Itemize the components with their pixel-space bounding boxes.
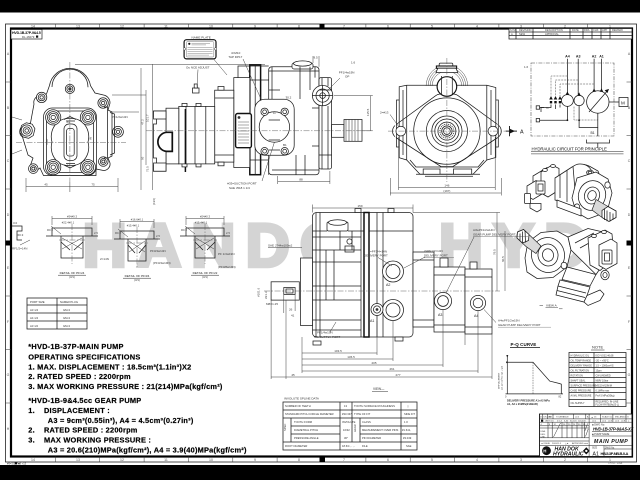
svg-text:2.5: 2.5 (156, 234, 160, 238)
svg-text:A1: A1 (370, 319, 374, 323)
svg-text:PRESSURE ANGLE: PRESSURE ANGLE (294, 436, 319, 440)
svg-text:GM-3: GM-3 (63, 308, 70, 312)
svg-text:45: 45 (291, 373, 295, 377)
svg-text:APP: APP (602, 28, 607, 32)
svg-text:#1.641₊: #1.641₊ (402, 428, 412, 432)
svg-text:16/32: 16/32 (343, 428, 350, 432)
svg-text:A2: A2 (592, 55, 597, 59)
svg-text:14: 14 (31, 458, 35, 462)
svg-text:CHK.: CHK. (541, 436, 546, 438)
svg-text:ROOT DIAMETER: ROOT DIAMETER (285, 444, 307, 448)
svg-text:OP: OP (345, 75, 349, 79)
svg-text:#16.6#0.1: #16.6#0.1 (131, 218, 144, 222)
svg-text:M8X1.25: M8X1.25 (266, 302, 278, 306)
svg-text:A1: A1 (593, 452, 599, 458)
svg-text:A1, A2 ≤ 21MPa(214BAR): A1, A2 ≤ 21MPa(214BAR) (507, 402, 538, 406)
svg-text:A3wPF1/2w14N: A3wPF1/2w14N (473, 228, 495, 232)
svg-text:A4: A4 (565, 55, 570, 59)
svg-text:2: 2 (564, 25, 566, 29)
svg-text:5: 5 (431, 25, 433, 29)
svg-text:R0.3: R0.3 (115, 231, 121, 235)
svg-text:FILE: FILE (362, 444, 368, 448)
svg-text:OIL FILTRATION: OIL FILTRATION (571, 369, 590, 372)
svg-text:OPERATING SPECIFICATIONS: OPERATING SPECIFICATIONS (28, 352, 140, 361)
svg-text:2: 2 (564, 458, 566, 462)
svg-text:HVD-1B-37P-9&4.5-XX: HVD-1B-37P-9&4.5-XX (593, 427, 634, 432)
svg-text:A: A (511, 32, 513, 36)
svg-text:R0.3: R0.3 (181, 228, 187, 232)
svg-text:1.6: 1.6 (351, 61, 356, 65)
svg-text:8: 8 (298, 25, 300, 29)
svg-text:3.0: 3.0 (13, 221, 18, 225)
svg-text:11: 11 (164, 458, 168, 462)
svg-text:VIEW A: VIEW A (546, 304, 558, 308)
svg-text:ISO VG32,46,68: ISO VG32,46,68 (596, 354, 615, 357)
svg-text:*HVD-1B-9&4.5cc GEAR PUMP: *HVD-1B-9&4.5cc GEAR PUMP (28, 396, 141, 405)
svg-text:A1: A1 (599, 55, 604, 59)
svg-text:#33.337: #33.337 (342, 412, 352, 416)
svg-text:TOOTH SURFACE ROUGHNESS: TOOTH SURFACE ROUGHNESS (354, 404, 395, 408)
svg-text:DATE: DATE (572, 28, 579, 32)
svg-text:APPROVED: APPROVED (572, 442, 584, 445)
svg-text:41: 41 (291, 314, 295, 318)
svg-text:45: 45 (44, 183, 48, 187)
svg-text:CASE PRESSURE: CASE PRESSURE (571, 389, 592, 392)
svg-text:(PF3/4w19N): (PF3/4w19N) (153, 261, 171, 265)
svg-text:18.63¹₊₋₊₋: 18.63¹₊₋₊₋ (342, 444, 356, 448)
svg-text:HYDRAULIC CIRCUIT FOR PRINCIPL: HYDRAULIC CIRCUIT FOR PRINCIPLE (532, 147, 607, 152)
svg-text:2.5: 2.5 (226, 231, 230, 235)
svg-text:136.5: 136.5 (347, 355, 355, 359)
svg-text:PIN DIAMETER: PIN DIAMETER (362, 436, 381, 440)
svg-text:47.2: 47.2 (141, 119, 145, 125)
svg-text:1: 1 (609, 25, 611, 29)
svg-text:OIL SUPPLY: OIL SUPPLY (571, 402, 585, 405)
svg-text:(3/1): (3/1) (202, 275, 208, 279)
svg-text:-20 ~ +95°C: -20 ~ +95°C (596, 359, 609, 362)
svg-text:REVISION: REVISION (519, 28, 532, 32)
svg-text:205: 205 (371, 361, 376, 365)
svg-text:IN: IN (89, 137, 93, 140)
svg-text:#15.4#0.1: #15.4#0.1 (195, 221, 208, 225)
svg-text:6: 6 (387, 458, 389, 462)
svg-text:1.5 ~ 1000cm²/S: 1.5 ~ 1000cm²/S (596, 364, 614, 367)
svg-text:GEAR PUMP DELIVERY PORT: GEAR PUMP DELIVERY PORT (473, 232, 516, 236)
svg-text:©HYD - 1998: ©HYD - 1998 (608, 462, 623, 465)
svg-text:(3/1): (3/1) (69, 275, 75, 279)
svg-text:F: F (7, 320, 9, 324)
svg-text:DESCRIPTION: DESCRIPTION (545, 28, 563, 32)
svg-text:1 #: 1 # (404, 420, 408, 424)
svg-text:0.1MPa max: 0.1MPa max (596, 389, 610, 392)
svg-text:SAE J518 1 1/4: SAE J518 1 1/4 (229, 186, 250, 190)
svg-text:DELIVERY PORT: DELIVERY PORT (424, 254, 448, 258)
svg-text:2=#13: 2=#13 (380, 111, 389, 115)
svg-text:7: 7 (343, 458, 345, 462)
svg-text:79.5: 79.5 (493, 249, 497, 255)
svg-text:#34#9.3: #34#9.3 (67, 215, 78, 219)
svg-text:#22.4#0.1: #22.4#0.1 (62, 221, 75, 225)
svg-text:9.5: 9.5 (314, 56, 319, 60)
svg-text:A4 1/4: A4 1/4 (30, 316, 39, 320)
svg-text:(3/1): (3/1) (134, 278, 140, 282)
svg-text:DRA: DRA (584, 28, 590, 32)
svg-text:TOOTH FORM: TOOTH FORM (294, 420, 313, 424)
svg-text:FLOW RATE(8w20 L): FLOW RATE(8w20 L) (596, 404, 620, 407)
svg-text:1. MAX. DISPLACEMENT : 18.5cm³: 1. MAX. DISPLACEMENT : 18.5cm³(1.1in³)X2 (28, 363, 191, 372)
svg-text:SCALE 1/2: SCALE 1/2 (602, 416, 613, 419)
svg-text:INVOLUTE: INVOLUTE (342, 420, 356, 424)
svg-text:13: 13 (344, 404, 347, 408)
svg-text:261: 261 (389, 367, 394, 371)
svg-text:HYDRAULIC OIL: HYDRAULIC OIL (571, 354, 590, 357)
svg-text:OUT: OUT (45, 138, 49, 145)
svg-text:26: 26 (289, 308, 293, 312)
svg-text:TAP DP17: TAP DP17 (228, 55, 242, 59)
svg-text:4=M10: 4=M10 (231, 51, 241, 55)
svg-text:GEAR: GEAR (353, 424, 357, 432)
svg-text:14: 14 (31, 25, 35, 29)
svg-text:H: H (543, 449, 546, 454)
svg-text:A4: A4 (474, 314, 478, 318)
svg-text:AXIAL PRESSURE: AXIAL PRESSURE (571, 394, 592, 397)
svg-text:TYPE OF FIT: TYPE OF FIT (354, 412, 371, 416)
svg-text:DL-16079: DL-16079 (22, 35, 35, 39)
svg-text:SIZE: SIZE (592, 447, 598, 449)
svg-text:2. RATED SPEED : 2200rpm: 2. RATED SPEED : 2200rpm (28, 372, 131, 381)
svg-text:115.5: 115.5 (366, 108, 370, 116)
svg-text:SHAFT SEAL: SHAFT SEAL (571, 379, 587, 382)
svg-text:UNIT mm: UNIT mm (545, 421, 554, 423)
svg-text:F≤A 5 MPa(50kg): F≤A 5 MPa(50kg) (596, 395, 615, 398)
svg-text:1. DISPLACEMENT :: 1. DISPLACEMENT : (28, 406, 110, 415)
svg-text:ROTATION: ROTATION (571, 374, 583, 377)
svg-text:GM-3: GM-3 (63, 324, 70, 328)
svg-text:7: 7 (343, 25, 345, 29)
svg-text:9: 9 (254, 458, 256, 462)
svg-text:#15.4#0.1: #15.4#0.1 (127, 224, 140, 228)
svg-text:MEASUREMENT OVER PINS: MEASUREMENT OVER PINS (362, 428, 398, 432)
svg-text:146: 146 (444, 184, 449, 188)
svg-text:▲ ISSUE: ▲ ISSUE (541, 442, 550, 445)
svg-text:30-120: 30-120 (570, 421, 577, 423)
svg-text:5: 5 (431, 458, 433, 462)
svg-text:DELIVERY PORT: DELIVERY PORT (364, 254, 388, 258)
svg-text:OIL TEMP RANGE: OIL TEMP RANGE (571, 359, 592, 362)
svg-text:DWG No.: DWG No. (605, 447, 615, 449)
svg-text:▲▲: ▲▲ (584, 442, 588, 445)
svg-text:NUMBER OF TEETH: NUMBER OF TEETH (285, 404, 311, 408)
svg-text:4: 4 (476, 25, 478, 29)
svg-text:RF1/2=14N: RF1/2=14N (12, 247, 27, 251)
svg-text:101.7: 101.7 (146, 114, 150, 122)
svg-text:HYDRAULIC: HYDRAULIC (553, 452, 584, 458)
svg-text:4: 4 (476, 458, 478, 462)
svg-text:120-400: 120-400 (578, 421, 586, 423)
svg-text:MS32-M10N/M: MS32-M10N/M (596, 384, 612, 387)
svg-text:73.5: 73.5 (146, 166, 150, 172)
svg-text:SYM: SYM (510, 28, 516, 32)
svg-text:277: 277 (395, 373, 400, 377)
svg-text:G: G (7, 373, 10, 377)
svg-text:10μm: 10μm (596, 369, 602, 372)
svg-text:SPEC: SPEC (283, 424, 287, 431)
svg-text:SAE J744w105w2: SAE J744w105w2 (268, 244, 293, 248)
svg-text:Ou NCE ADJUST: Ou NCE ADJUST (186, 66, 210, 70)
svg-text:A3 = 9cm³(0.55in³), A4 = 4.5cm: A3 = 9cm³(0.55in³), A4 = 4.5cm³(0.27in³) (48, 416, 194, 425)
svg-text:(PF3/8w19N): (PF3/8w19N) (218, 265, 236, 269)
svg-text:P-Q CURVE: P-Q CURVE (511, 342, 537, 347)
svg-text:30.2: 30.2 (286, 96, 292, 100)
svg-text:DISPLACEMENT: DISPLACEMENT (498, 372, 501, 389)
svg-text:M: M (621, 101, 625, 106)
svg-text:2=PF1/2=14N: 2=PF1/2=14N (424, 249, 443, 253)
svg-text:PF3/4w14N: PF3/4w14N (150, 249, 166, 253)
svg-text:MAIN PUMP: MAIN PUMP (594, 439, 628, 445)
svg-text:3: 3 (520, 458, 522, 462)
svg-text:HB-5-3P-NB-B-0-A: HB-5-3P-NB-B-0-A (601, 451, 629, 456)
svg-text:3: 3 (520, 25, 522, 29)
svg-text:75: 75 (91, 183, 95, 187)
svg-text:0.5-3: 0.5-3 (557, 421, 563, 423)
svg-text:30°: 30° (344, 436, 348, 440)
svg-text:NEW: NEW (519, 32, 526, 36)
svg-text:A3 = 20.6(210)MPa(kgf/cm²), A4: A3 = 20.6(210)MPa(kgf/cm²), A4 = 3.9(40)… (48, 446, 247, 455)
svg-text:2=14N: 2=14N (100, 257, 109, 261)
svg-text:PF1/2w14N: PF1/2w14N (112, 115, 128, 119)
svg-text:GM-3: GM-3 (63, 316, 70, 320)
svg-text:A: A (520, 130, 524, 136)
svg-text:#3.049: #3.049 (403, 436, 412, 440)
svg-text:STANDARD PITCH CIRCLE DIAMETER: STANDARD PITCH CIRCLE DIAMETER (285, 412, 334, 416)
svg-text:CHK: CHK (593, 28, 599, 32)
svg-text:#21.3: #21.3 (264, 291, 268, 299)
svg-text:12: 12 (120, 458, 124, 462)
svg-text:SIDE FIT: SIDE FIT (404, 412, 415, 416)
svg-text:NAME# PLUG: NAME# PLUG (60, 300, 78, 304)
svg-text:60.5: 60.5 (501, 256, 505, 262)
svg-text:3. MAX WORKING PRESSURE : 21(2: 3. MAX WORKING PRESSURE : 21(214)MPa(kgf… (28, 382, 223, 391)
svg-text:2. RATED SPEED : 2200rpm: 2. RATED SPEED : 2200rpm (28, 426, 138, 435)
svg-text:VIEW—: VIEW— (373, 387, 385, 391)
svg-text:6: 6 (387, 25, 389, 29)
svg-text:CLASS: CLASS (362, 420, 371, 424)
svg-text:△▲: △▲ (565, 442, 569, 445)
svg-text:#24#0.3: #24#0.3 (200, 215, 211, 219)
svg-text:13: 13 (76, 458, 80, 462)
svg-text:GEAR PUMP DELIVERY PORT: GEAR PUMP DELIVERY PORT (498, 323, 541, 327)
svg-text:11: 11 (164, 25, 168, 29)
svg-text:A2: A2 (386, 283, 390, 287)
svg-text:A3: A3 (67, 120, 71, 124)
svg-text:(197): (197) (443, 189, 450, 193)
svg-text:NAME PLATE: NAME PLATE (192, 36, 211, 40)
svg-text:NBR/ 10bar: NBR/ 10bar (596, 379, 609, 382)
svg-text:F: F (628, 320, 630, 324)
svg-text:TOLERANCE: TOLERANCE (556, 416, 569, 419)
svg-text:10: 10 (209, 25, 213, 29)
svg-text:OIL SUPPLY PORT: OIL SUPPLY PORT (314, 335, 340, 339)
svg-text:B1: B1 (591, 131, 595, 135)
svg-text:PORT SIZE: PORT SIZE (30, 300, 45, 304)
svg-text:DIAMETRAL PITCH: DIAMETRAL PITCH (294, 428, 318, 432)
svg-text:REMARK: REMARK (612, 28, 623, 32)
svg-text:1.6: 1.6 (524, 65, 529, 69)
svg-text:SURFACE PRESSURE: SURFACE PRESSURE (571, 384, 597, 387)
svg-text:2003.11.5: 2003.11.5 (552, 443, 562, 445)
svg-text:INVOLUTE SPLINE DATA: INVOLUTE SPLINE DATA (284, 397, 319, 401)
svg-text:B1: B1 (283, 143, 287, 147)
svg-text:66: 66 (141, 156, 145, 160)
svg-text:SAE: SAE (406, 444, 412, 448)
svg-text:R0.3: R0.3 (47, 228, 53, 232)
svg-text:A3 1/4: A3 1/4 (30, 308, 39, 312)
svg-text:G: G (628, 373, 631, 377)
svg-text:A4wPF1/2w19N: A4wPF1/2w19N (498, 319, 520, 323)
svg-text:R0.3: R0.3 (17, 233, 24, 237)
svg-text:(196): (196) (152, 198, 156, 205)
svg-text:3RD ANGLE: 3RD ANGLE (615, 416, 627, 419)
svg-text:DELIVERY RANGE: DELIVERY RANGE (571, 364, 593, 367)
svg-text:#101.6: #101.6 (257, 287, 261, 297)
svg-text:88: 88 (299, 178, 303, 182)
svg-text:A3 1/2: A3 1/2 (30, 324, 39, 328)
svg-text:10: 10 (209, 458, 213, 462)
svg-text:159: 159 (357, 204, 362, 208)
svg-text:9: 9 (254, 25, 256, 29)
svg-text:CW (VIEWED: CW (VIEWED (596, 374, 611, 377)
svg-text:■ PUMP NAME: ■ PUMP NAME (592, 433, 610, 436)
svg-text:12: 12 (120, 25, 124, 29)
svg-text:Q1, Q2 cm³/rev (Q1 + Q2): Q1, Q2 cm³/rev (Q1 + Q2) (501, 366, 504, 390)
svg-text:APPROVAL: APPROVAL (545, 32, 559, 36)
svg-text:A3: A3 (576, 55, 581, 59)
svg-text:A3: A3 (438, 313, 442, 317)
svg-text:DELIVERY PRESSURE A1+A2 MPa: DELIVERY PRESSURE A1+A2 MPa (507, 398, 550, 402)
svg-text:103.5: 103.5 (334, 349, 342, 353)
svg-text:2.5: 2.5 (94, 231, 98, 235)
svg-text:*HVD-1B-37P-MAIN PUMP: *HVD-1B-37P-MAIN PUMP (28, 342, 123, 351)
svg-text:PF 1/4w19N: PF 1/4w19N (218, 252, 235, 256)
svg-text:13: 13 (76, 25, 80, 29)
svg-text:NOTE: NOTE (592, 345, 603, 350)
svg-text:8: 8 (298, 458, 300, 462)
svg-text:DRA.: DRA. (541, 430, 546, 433)
svg-text:3. MAX WORKING PRESSURE :: 3. MAX WORKING PRESSURE : (28, 436, 151, 445)
